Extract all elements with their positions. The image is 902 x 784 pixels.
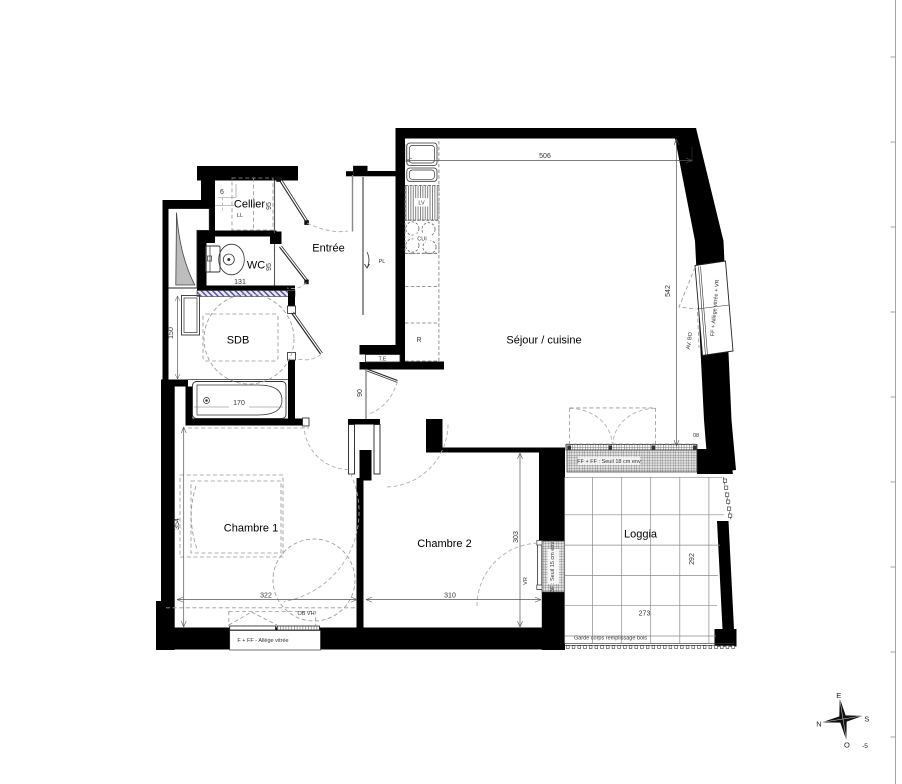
svg-text:310: 310: [444, 593, 456, 600]
svg-text:170: 170: [233, 400, 245, 407]
svg-text:150: 150: [168, 327, 175, 339]
svg-text:292: 292: [689, 553, 696, 565]
svg-text:LL: LL: [237, 213, 243, 219]
svg-text:R: R: [416, 337, 421, 344]
svg-text:N: N: [816, 719, 821, 728]
svg-text:506: 506: [539, 153, 551, 160]
svg-text:Garde corps remplissage bois: Garde corps remplissage bois: [574, 636, 647, 642]
svg-text:OB VH: OB VH: [297, 611, 314, 617]
svg-text:T.E: T.E: [379, 357, 387, 363]
svg-text:FF + FF : Seuil 18 cm env: FF + FF : Seuil 18 cm env: [577, 459, 641, 465]
svg-text:6: 6: [220, 189, 224, 196]
svg-text:354: 354: [174, 518, 181, 530]
svg-text:E: E: [836, 691, 841, 700]
svg-text:SDB: SDB: [227, 335, 250, 347]
svg-text:Chambre 2: Chambre 2: [417, 538, 471, 550]
svg-text:PL: PL: [379, 259, 386, 265]
svg-text:Séjour / cuisine: Séjour / cuisine: [506, 335, 581, 347]
svg-text:322: 322: [260, 593, 272, 600]
svg-text:S: S: [864, 715, 869, 724]
svg-text:90: 90: [357, 389, 364, 397]
svg-text:F + FF - Allège vitrée: F + FF - Allège vitrée: [237, 638, 288, 644]
svg-text:273: 273: [639, 611, 651, 618]
svg-text:Entrée: Entrée: [312, 243, 344, 255]
svg-text:VR: VR: [523, 577, 529, 585]
svg-text:303: 303: [513, 531, 520, 543]
svg-text:131: 131: [234, 279, 246, 286]
svg-text:Chambre 1: Chambre 1: [224, 523, 278, 535]
svg-text:95: 95: [266, 263, 273, 271]
svg-text:LV: LV: [418, 201, 425, 207]
svg-text:3F : Seuil 15 cm env: 3F : Seuil 15 cm env: [550, 542, 556, 592]
svg-text:Loggia: Loggia: [624, 529, 658, 541]
svg-text:-5: -5: [862, 743, 868, 750]
svg-text:WC: WC: [247, 260, 265, 272]
svg-text:542: 542: [665, 285, 672, 297]
svg-text:95: 95: [266, 202, 273, 210]
svg-text:O: O: [844, 741, 850, 750]
svg-text:CUI: CUI: [417, 237, 427, 243]
svg-text:Cellier: Cellier: [234, 199, 266, 211]
svg-text:08: 08: [693, 433, 699, 439]
